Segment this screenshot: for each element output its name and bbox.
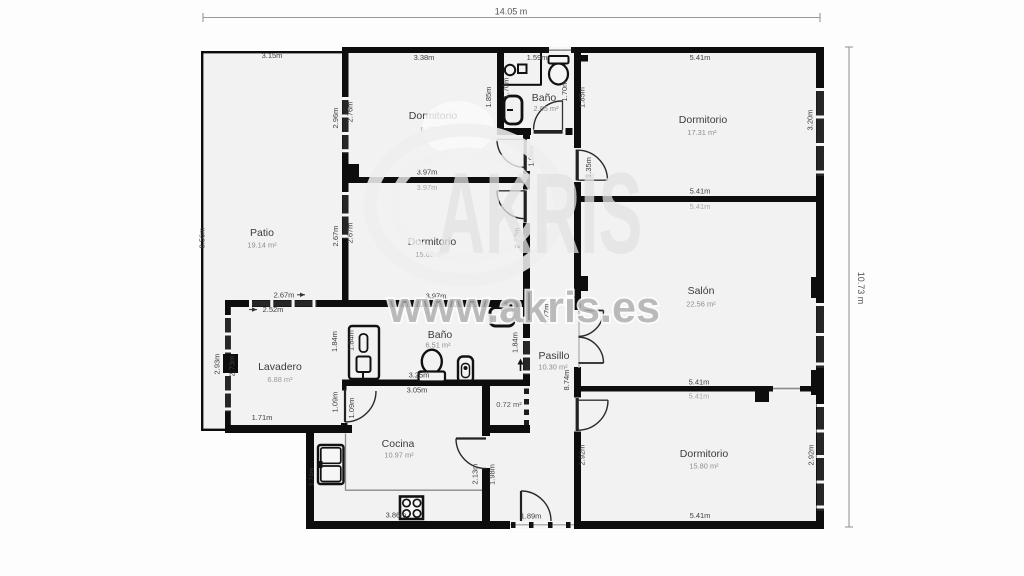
svg-text:5.41m: 5.41m (689, 392, 710, 401)
svg-text:3.15m: 3.15m (262, 51, 283, 60)
svg-text:1.84m: 1.84m (330, 331, 339, 352)
svg-text:2.67m: 2.67m (346, 223, 355, 244)
svg-text:5.41m: 5.41m (690, 202, 711, 211)
svg-text:1.71m: 1.71m (252, 413, 273, 422)
svg-text:2.65 m²: 2.65 m² (533, 104, 559, 113)
svg-text:AKRIS: AKRIS (438, 150, 643, 278)
svg-text:14.05 m: 14.05 m (495, 7, 528, 17)
svg-text:8.74m: 8.74m (562, 370, 571, 391)
svg-text:1.09m: 1.09m (331, 392, 340, 413)
svg-text:1.09m: 1.09m (347, 398, 356, 419)
svg-text:2.73m: 2.73m (228, 356, 237, 377)
svg-text:17.31 m²: 17.31 m² (687, 128, 717, 137)
svg-text:Lavadero: Lavadero (258, 361, 302, 373)
svg-text:2.52m: 2.52m (263, 305, 284, 314)
svg-text:5.41m: 5.41m (689, 378, 710, 387)
svg-text:22.56 m²: 22.56 m² (686, 300, 716, 309)
svg-text:3.05m: 3.05m (407, 386, 428, 395)
svg-text:3.20m: 3.20m (806, 110, 815, 131)
svg-text:19.14 m²: 19.14 m² (247, 241, 277, 250)
svg-text:1.70m: 1.70m (560, 81, 569, 102)
svg-text:5.41m: 5.41m (690, 187, 711, 196)
svg-text:1.89m: 1.89m (521, 512, 542, 521)
svg-text:3.86m: 3.86m (386, 511, 407, 520)
svg-text:5.41m: 5.41m (690, 511, 711, 520)
svg-text:1.59m: 1.59m (527, 53, 548, 62)
svg-text:2.67m: 2.67m (331, 226, 340, 247)
svg-text:2.96m: 2.96m (331, 108, 340, 129)
svg-text:6.51 m²: 6.51 m² (425, 341, 451, 350)
svg-text:Baño: Baño (532, 92, 557, 104)
svg-text:www.akris.es: www.akris.es (387, 283, 660, 332)
svg-text:1.70m: 1.70m (502, 78, 511, 99)
svg-text:1.74m: 1.74m (309, 468, 316, 486)
svg-text:1.84m: 1.84m (511, 332, 520, 353)
svg-text:2.67m: 2.67m (274, 291, 295, 300)
svg-text:3.97m: 3.97m (417, 183, 438, 192)
svg-text:5.41m: 5.41m (690, 53, 711, 62)
svg-text:2.13m: 2.13m (471, 464, 480, 485)
svg-text:6.88 m²: 6.88 m² (267, 375, 293, 384)
svg-text:1.85m: 1.85m (578, 87, 587, 108)
svg-text:2.92m: 2.92m (807, 445, 816, 466)
svg-text:1.98m: 1.98m (488, 464, 497, 485)
svg-text:0.72 m²: 0.72 m² (496, 400, 522, 409)
svg-text:Salón: Salón (688, 285, 715, 297)
svg-text:3.38m: 3.38m (414, 53, 435, 62)
svg-text:Patio: Patio (250, 227, 274, 239)
svg-text:2.76m: 2.76m (346, 102, 355, 123)
svg-text:Pasillo: Pasillo (539, 350, 570, 362)
svg-text:15.80 m²: 15.80 m² (689, 462, 719, 471)
svg-text:10.73 m: 10.73 m (856, 272, 866, 305)
svg-text:Dormitorio: Dormitorio (680, 448, 729, 460)
svg-text:2.92m: 2.92m (578, 445, 587, 466)
svg-text:1.84m: 1.84m (347, 330, 356, 351)
svg-text:Dormitorio: Dormitorio (679, 114, 728, 126)
svg-text:1.85m: 1.85m (484, 87, 493, 108)
svg-text:8.56m: 8.56m (198, 228, 207, 249)
svg-text:10.97 m²: 10.97 m² (384, 451, 414, 460)
svg-text:2.93m: 2.93m (213, 354, 222, 375)
svg-text:3.25m: 3.25m (409, 371, 430, 380)
svg-text:Cocina: Cocina (382, 438, 415, 450)
